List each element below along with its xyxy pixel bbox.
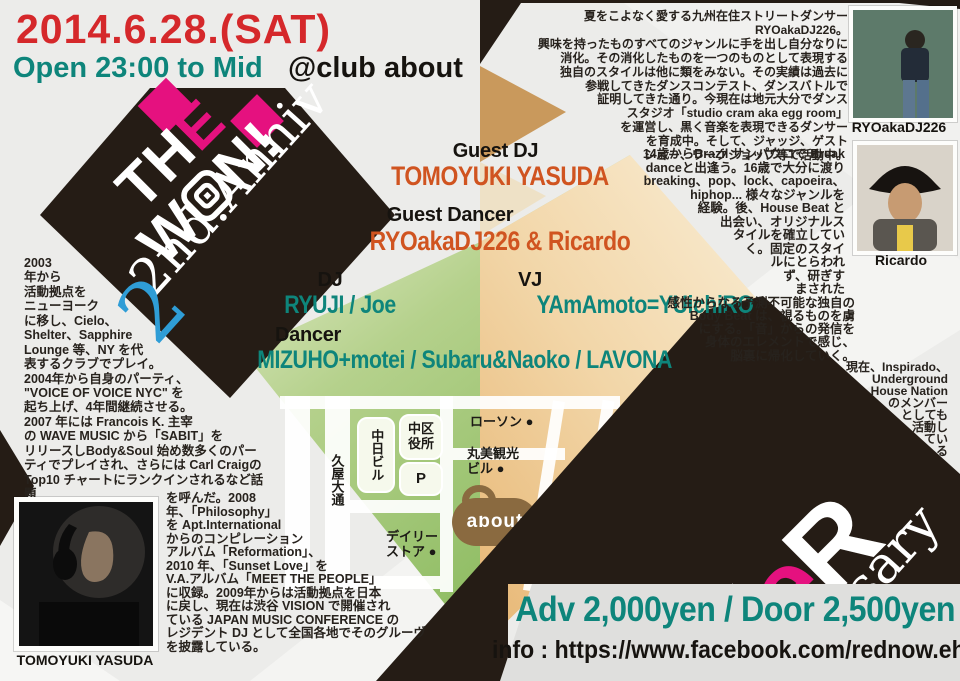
ricardo-bio-part3: 現在、Inspirado、 Underground House Nation の…: [748, 361, 948, 457]
yasuda-photo-caption: TOMOYUKI YASUDA: [10, 652, 160, 668]
event-date: 2014.6.28.(SAT): [16, 6, 331, 53]
yasuda-photo: [14, 497, 158, 651]
event-venue: @club about: [288, 52, 463, 85]
ricardo-bio-part1: 14歳からBrazil サンパウロで Break danceと出逢う。16歳で大…: [555, 148, 845, 297]
ricardo-bio-part2: 感性からなる予測不可能な独自の Body Beat は、視るものを虜 にする。「…: [655, 297, 855, 363]
info-url[interactable]: info : https://www.facebook.com/rednow.e…: [492, 636, 920, 665]
ricardo-photo-image: [857, 145, 953, 251]
ryo-photo-image: [853, 10, 953, 118]
dancer-label: Dancer: [263, 324, 353, 347]
ryo-bio: 夏をこよなく愛する九州在住ストリートダンサーRYOakaDJ226。 興味を持っ…: [496, 10, 848, 163]
flyer: 中日ビル 中区 役所 P ローソン ● 丸美観光 ビル ● デイリー ストア ●…: [0, 0, 960, 681]
event-time: Open 23:00 to Mid: [13, 52, 263, 85]
dancer-name: MIZUHO+motei / Subaru&Naoko / LAVONA: [257, 346, 623, 375]
yasuda-bio-part1: 2003 年から 活動拠点を ニューヨーク に移し、Cielo、 Shelter…: [24, 256, 274, 501]
yasuda-bio-part2: を呼んだ。2008 年、「Philosophy」 を Apt.Internati…: [166, 492, 471, 654]
ryo-photo: [849, 6, 957, 122]
guest-dancer-label: Guest Dancer: [365, 204, 535, 227]
price-text: Adv 2,000yen / Door 2,500yen: [515, 590, 934, 630]
yasuda-photo-image: [19, 502, 153, 646]
ricardo-photo: [853, 141, 957, 255]
dj-label: DJ: [295, 269, 365, 292]
ryo-photo-caption: RYOakaDJ226: [843, 119, 955, 135]
dj-name: RYUJI / Joe: [268, 291, 413, 320]
ricardo-photo-caption: Ricardo: [851, 252, 951, 268]
